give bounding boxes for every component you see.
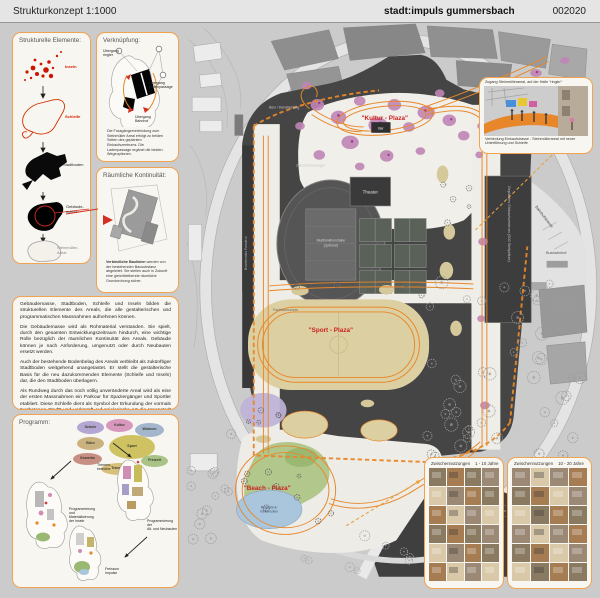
photo-tile: [550, 544, 568, 562]
photo-tile: [482, 487, 499, 505]
continuity-diagram: [97, 181, 176, 255]
photo-tile: [512, 487, 530, 505]
panel-linkage: Verknüpfung: Übergang ringler Übergang L…: [96, 32, 179, 162]
photo-tile: [569, 468, 587, 486]
programm-label-themen: Themen- bereiche: [97, 463, 111, 471]
continuity-lead: Verbindliche Baulinien: [106, 260, 146, 264]
schleife-diagram: [22, 100, 64, 138]
pond-label-2: haltebecken: [260, 510, 278, 514]
arrow-down-2: [41, 142, 45, 152]
beach-plaza-label: "Beach - Plaza": [244, 485, 291, 492]
photo-tile: [531, 525, 549, 543]
photo-tile: [429, 506, 446, 524]
project-name: stadt:impuls gummersbach: [384, 6, 515, 17]
photo-tile: [429, 563, 446, 581]
photo-tile: [482, 525, 499, 543]
arrow-down-3: [41, 192, 45, 200]
photo-caption-bottom: Verbindung Einkaufstrasse - Steinmüllera…: [485, 137, 588, 146]
programm-label-inseln: Programmierung und Materialisierung der …: [69, 507, 111, 523]
legend-label-areal: Steinmüller- Areal: [57, 246, 78, 255]
sheet-code: 002020: [553, 6, 586, 17]
photo-collage: [512, 468, 587, 581]
concept-paragraphs: Gebäudemasse, Stadtboden, Schleife und I…: [13, 297, 178, 410]
panel-concept-text: Gebäudemasse, Stadtboden, Schleife und I…: [12, 296, 179, 410]
photo-tile: [569, 563, 587, 581]
photo-tile: [531, 563, 549, 581]
photo-tile: [482, 544, 499, 562]
fh-label: Fachhochschule: [273, 308, 298, 312]
page-title: Strukturkonzept 1:1000: [13, 6, 116, 17]
photo-tile: [447, 563, 464, 581]
crossing-label-bahnhof: Übergang Bahnhof: [135, 115, 151, 123]
photo-tile: [531, 506, 549, 524]
linkage-caption: Die Fussgängerverbindung zum Steinmüller…: [107, 129, 169, 157]
photo-tile: [465, 525, 482, 543]
interim-label: Zwischennutzungen: [296, 163, 325, 167]
photo-tile: [447, 487, 464, 505]
concept-paragraph: Gebäudemasse, Stadtboden, Schleife und I…: [20, 302, 171, 321]
photo-tile: [512, 544, 530, 562]
photo-caption-top: Zugang Steinmüllerareal, auf der Halle "…: [485, 80, 588, 85]
photo-tile: [550, 525, 568, 543]
photo-tile: [569, 525, 587, 543]
panel-structural-elements: Strukturelle Elemente:: [12, 32, 91, 264]
photo-tile: [465, 544, 482, 562]
photo-collage: [429, 468, 499, 581]
photo-tile: [512, 563, 530, 581]
diagram-neubauten: [117, 460, 153, 521]
crossing-label-passage: Übergang Ladenpassage: [149, 81, 173, 89]
photo-tile: [512, 525, 530, 543]
photo-tile: [465, 563, 482, 581]
photo-tile: [569, 487, 587, 505]
photo-tile: [429, 487, 446, 505]
grid-range: 10 - 20 Jahre: [558, 461, 584, 466]
photo-tile: [447, 525, 464, 543]
stadtboden-diagram: [22, 152, 67, 190]
rendering-image: [484, 86, 588, 136]
photo-tile: [429, 544, 446, 562]
parkdeck-label: Bestehendes Parkdeck: [244, 236, 248, 270]
structural-elements-diagram: [13, 46, 89, 262]
photo-tile: [482, 468, 499, 486]
bar-building: Bar: [371, 122, 390, 133]
mall-building: Geplantes Einkaufszentrum (500 Stellplät…: [485, 176, 531, 322]
diagram-inseln: [26, 482, 67, 549]
diagram-freiraum: [69, 526, 101, 581]
concept-paragraph: Auch der bestehende Bodenbelag des Areal…: [20, 360, 171, 385]
panel-continuity: Räumliche Kontinuität: Verbindliche Baul…: [96, 167, 179, 293]
photo-tile: [447, 468, 464, 486]
bar-label: Bar: [378, 126, 384, 130]
panel-interim-grid-1: Zwischennutzungen 1 - 10 Jahre: [424, 457, 504, 589]
theater-building: Theater: [350, 177, 390, 206]
red-connector: [60, 198, 108, 224]
inseln-diagram: [24, 51, 62, 81]
poster-board: Strukturkonzept 1:1000 stadt:impuls gumm…: [0, 0, 600, 598]
photo-tile: [482, 506, 499, 524]
panel-title: Räumliche Kontinuität:: [103, 172, 178, 179]
photo-tile: [531, 468, 549, 486]
photo-tile: [512, 506, 530, 524]
hall-label-1: Multifunktionshalle: [317, 239, 345, 243]
header-bar: Strukturkonzept 1:1000 stadt:impuls gumm…: [0, 0, 600, 23]
concept-paragraph: Als Rundweg durch das noch völlig unverä…: [20, 389, 171, 410]
programm-diagrams: [13, 415, 179, 588]
panel-interim-grid-2: Zwischennutzungen 10 - 20 Jahre: [507, 457, 592, 589]
programm-label-neubauten: Programmierung der Alt- und Neubauten: [147, 519, 179, 531]
photo-tile: [569, 506, 587, 524]
areal-outline-diagram: [28, 241, 61, 262]
bus-label: Busbahnhof: [546, 251, 567, 255]
photo-tile: [569, 544, 587, 562]
legend-label-inseln: Inseln: [65, 65, 77, 70]
photo-tile: [465, 487, 482, 505]
photo-tile: [550, 487, 568, 505]
panel-title: Verknüpfung:: [103, 37, 178, 44]
grid-title: Zwischennutzungen: [514, 461, 553, 466]
photo-tile: [531, 544, 549, 562]
photo-tile: [550, 563, 568, 581]
photo-tile: [447, 506, 464, 524]
sport-plaza-label: "Sport - Plaza": [309, 327, 353, 334]
panel-photo-inset: Zugang Steinmüllerareal, auf der Halle "…: [479, 77, 593, 154]
programm-label-freiraum: Freiraum Impulse: [105, 567, 119, 575]
photo-tile: [429, 468, 446, 486]
kultur-plaza-label: "Kultur - Plaza": [361, 115, 408, 122]
theater-label: Theater: [363, 189, 379, 194]
photo-tile: [447, 544, 464, 562]
crossing-label-ringler: Übergang ringler: [103, 49, 119, 57]
legend-label-schleife: Schleife: [65, 115, 80, 120]
photo-tile: [465, 468, 482, 486]
legend-label-stadtboden: Stadtboden: [63, 163, 83, 168]
photo-tile: [429, 525, 446, 543]
arrow-down-1: [41, 86, 45, 98]
photo-tile: [512, 468, 530, 486]
grid-title: Zwischennutzungen: [431, 461, 470, 466]
photo-tile: [465, 506, 482, 524]
concept-paragraph: Die Gebäudemasse wird als Rohmaterial ve…: [20, 325, 171, 356]
continuity-caption: Verbindliche Baulinien werden von der be…: [106, 260, 170, 283]
grid-range: 1 - 10 Jahre: [475, 461, 498, 466]
photo-tile: [550, 506, 568, 524]
photo-tile: [550, 468, 568, 486]
panel-programm: Programm: SchuleKulturWohnenSportBüroGew…: [12, 414, 179, 588]
panel-title: Strukturelle Elemente:: [19, 37, 90, 44]
office-label: Büro / Dienstleistung: [269, 106, 299, 110]
hall-label-2: (optional): [324, 243, 338, 247]
photo-tile: [482, 563, 499, 581]
photo-tile: [531, 487, 549, 505]
